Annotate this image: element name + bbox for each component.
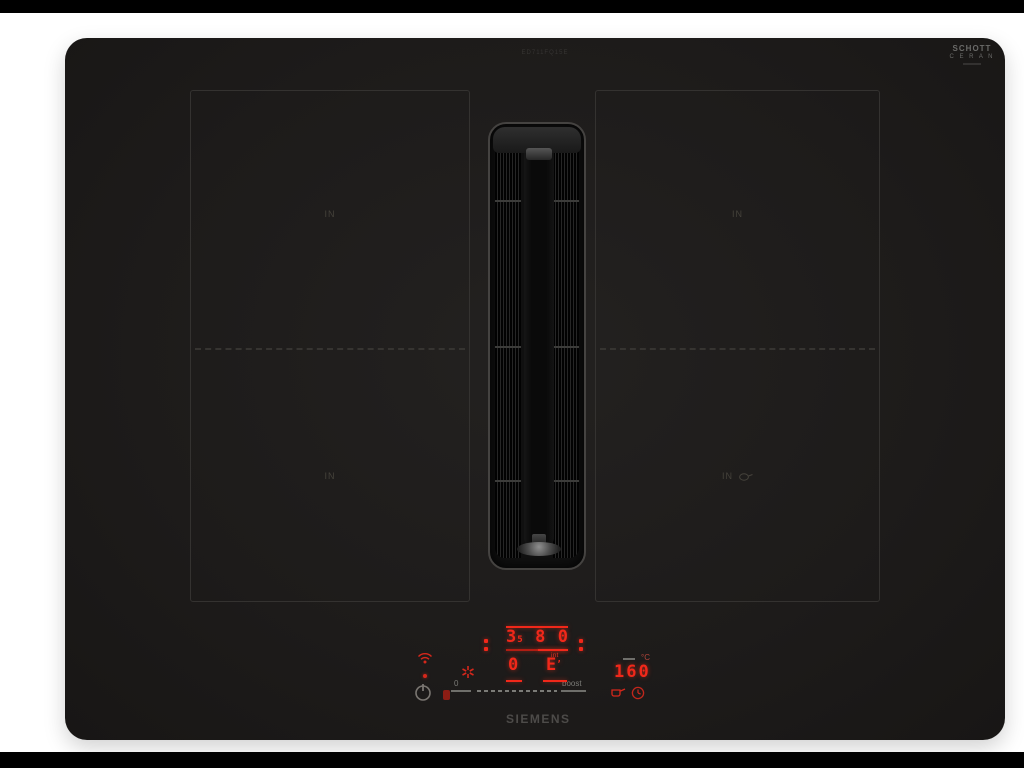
model-etching: ED711FQ15E xyxy=(505,50,585,56)
star-icon[interactable] xyxy=(461,665,475,679)
vent-display-left: 0 xyxy=(508,657,518,674)
vent-grille-seam xyxy=(553,200,579,202)
siemens-wordmark: SIEMENS xyxy=(506,712,564,726)
child-lock-icon[interactable] xyxy=(443,690,450,700)
zone-marking-bottom-right-label: IN xyxy=(722,471,733,481)
schott-ceran-line1: SCHOTT xyxy=(948,44,996,53)
flex-zone-divider-left xyxy=(195,348,465,350)
display-mid-segment-bright xyxy=(538,649,568,651)
power-slider-track[interactable] xyxy=(477,690,557,692)
temp-key-line[interactable] xyxy=(623,658,635,660)
temp-unit-label: °C xyxy=(641,653,650,662)
temp-value-display: 160 xyxy=(614,662,651,682)
zone-marking-bottom-left: IN xyxy=(191,471,469,481)
cooking-zone-group-left: IN IN xyxy=(190,90,470,602)
vent-left-underline[interactable] xyxy=(506,680,522,682)
power-digit-right: 0 xyxy=(558,629,568,649)
vent-grille-seam xyxy=(495,480,521,482)
zone-marking-top-left: IN xyxy=(191,209,469,219)
downdraft-vent-module xyxy=(488,122,586,570)
cooking-zone-group-right: IN IN xyxy=(595,90,880,602)
power-digit-mid: 8 xyxy=(535,629,545,649)
vent-right-underline[interactable] xyxy=(543,680,567,682)
status-dot-indicator xyxy=(423,674,427,678)
frying-sensor-icon[interactable] xyxy=(610,687,626,698)
vent-grille-seam xyxy=(553,346,579,348)
wifi-icon xyxy=(417,652,433,664)
bottom-letterbox-bar xyxy=(0,752,1024,768)
vent-display-right: E’ xyxy=(546,657,562,674)
induction-hob-glass: ED711FQ15E SCHOTT C E R A N IN IN IN IN xyxy=(65,38,1005,740)
schott-ceran-logo: SCHOTT C E R A N xyxy=(948,44,996,65)
frying-sensor-zone-icon xyxy=(739,472,753,481)
zone-marking-top-right: IN xyxy=(596,209,879,219)
power-button[interactable] xyxy=(413,682,433,702)
vent-grille-seam xyxy=(553,480,579,482)
timer-icon[interactable] xyxy=(631,686,645,700)
slider-min-label: 0 xyxy=(454,679,458,688)
product-photo: ED711FQ15E SCHOTT C E R A N IN IN IN IN xyxy=(0,0,1024,768)
vent-center-channel xyxy=(524,152,554,546)
power-digit-left: 35 xyxy=(506,629,523,649)
vent-grille-seam xyxy=(495,346,521,348)
schott-ceran-subline xyxy=(963,63,981,65)
vent-grille-seam xyxy=(495,200,521,202)
zone-marking-bottom-right: IN xyxy=(596,471,879,481)
slider-min-key[interactable] xyxy=(451,690,471,692)
vent-handle-tab[interactable] xyxy=(526,148,552,160)
flex-zone-divider-right xyxy=(600,348,875,350)
power-level-display: 35 8 0 xyxy=(506,629,568,649)
schott-ceran-line2: C E R A N xyxy=(948,54,996,60)
top-letterbox-bar xyxy=(0,0,1024,13)
vent-knob-disc[interactable] xyxy=(517,542,561,556)
zone-select-indicator-left xyxy=(484,639,488,651)
zone-select-indicator-right xyxy=(579,639,583,651)
slider-boost-key[interactable] xyxy=(561,690,586,692)
